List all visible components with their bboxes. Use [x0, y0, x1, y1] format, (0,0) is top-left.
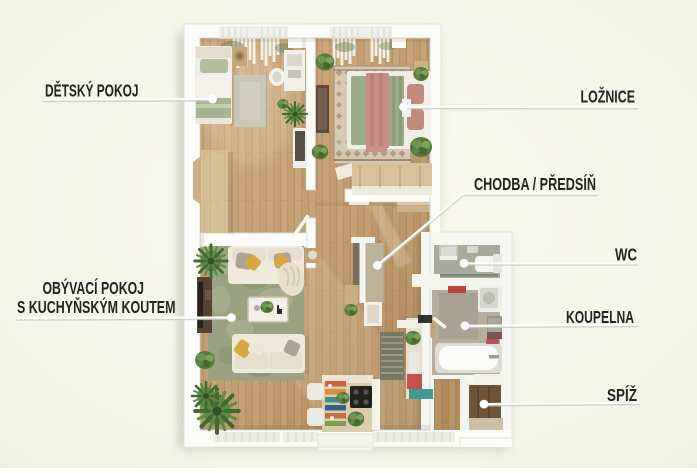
- svg-text:KOUPELNA: KOUPELNA: [566, 307, 634, 327]
- svg-text:S KUCHYŇSKÝM KOUTEM: S KUCHYŇSKÝM KOUTEM: [17, 296, 176, 317]
- svg-text:CHODBA / PŘEDSÍŇ: CHODBA / PŘEDSÍŇ: [474, 173, 596, 194]
- svg-text:SPÍŽ: SPÍŽ: [607, 384, 637, 405]
- svg-text:WC: WC: [615, 245, 637, 265]
- svg-text:LOŽNICE: LOŽNICE: [581, 86, 636, 107]
- svg-text:OBÝVACÍ POKOJ: OBÝVACÍ POKOJ: [43, 277, 145, 298]
- svg-text:DĚTSKÝ POKOJ: DĚTSKÝ POKOJ: [45, 80, 139, 101]
